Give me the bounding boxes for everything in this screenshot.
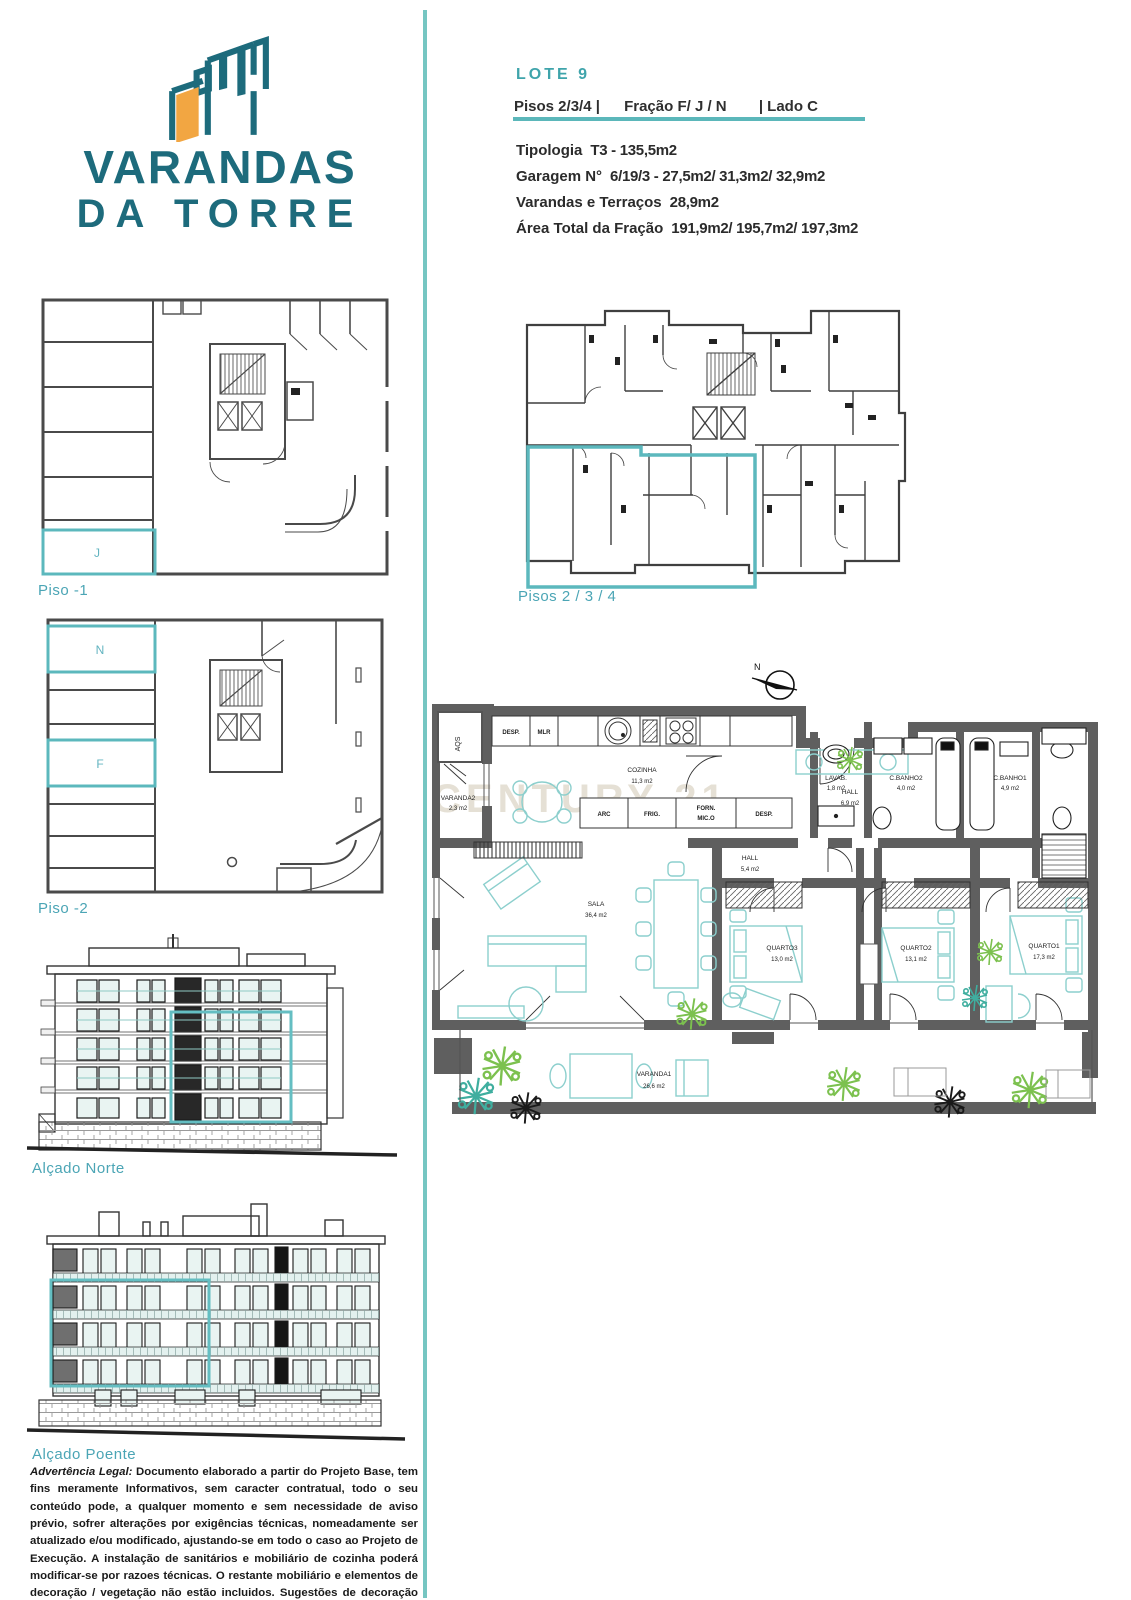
svg-text:4,0 m2: 4,0 m2 <box>897 786 916 792</box>
walls <box>432 704 1098 1114</box>
svg-text:LAVAB.: LAVAB. <box>825 775 847 782</box>
garage-space-J-label: J <box>94 546 100 560</box>
kitchen-forn: FORN. <box>697 806 716 812</box>
svg-text:1,8 m2: 1,8 m2 <box>827 786 846 792</box>
svg-text:VARANDA1: VARANDA1 <box>637 1071 672 1078</box>
svg-text:4,9 m2: 4,9 m2 <box>1001 786 1020 792</box>
brand-logo-icon <box>128 30 308 142</box>
svg-text:5,4 m2: 5,4 m2 <box>741 867 760 873</box>
svg-text:COZINHA: COZINHA <box>627 767 657 774</box>
detail-garagem: Garagem N°6/19/3 - 27,5m2/ 31,3m2/ 32,9m… <box>516 168 858 185</box>
fraction-details: TipologiaT3 - 135,5m2 Garagem N°6/19/3 -… <box>516 142 858 246</box>
legal-lead: Advertência Legal: <box>30 1466 132 1478</box>
detail-area-total: Área Total da Fração191,9m2/ 195,7m2/ 19… <box>516 220 858 237</box>
svg-text:13,0 m2: 13,0 m2 <box>771 957 793 963</box>
apartment-floor-plan: CENTURY 21 <box>430 698 1105 1128</box>
alcado-norte-elevation <box>25 928 400 1163</box>
svg-text:11,3 m2: 11,3 m2 <box>631 779 653 785</box>
subtitle-fracao: Fração F/ J / N <box>624 98 727 115</box>
kitchen-arc: ARC <box>598 812 612 818</box>
north-label: N <box>754 662 761 672</box>
svg-text:C.BANHO1: C.BANHO1 <box>993 775 1027 782</box>
kitchen-mico: MIC.O <box>697 816 715 822</box>
svg-text:VARANDA2: VARANDA2 <box>441 795 476 802</box>
brand-name-line1: VARANDAS <box>40 140 400 194</box>
legal-disclaimer: Advertência Legal: Documento elaborado a… <box>30 1464 418 1600</box>
piso-minus-1-plan: J <box>35 292 395 582</box>
piso-minus-2-plan: N F <box>40 612 390 900</box>
detail-varandas: Varandas e Terraços28,9m2 <box>516 194 858 211</box>
svg-text:QUARTO1: QUARTO1 <box>1028 943 1060 950</box>
svg-text:17,3 m2: 17,3 m2 <box>1033 955 1055 961</box>
svg-text:2,3 m2: 2,3 m2 <box>449 806 468 812</box>
svg-text:QUARTO3: QUARTO3 <box>766 945 798 952</box>
kitchen-frig: FRIG. <box>644 812 660 818</box>
piso-minus-1-caption: Piso -1 <box>38 582 88 599</box>
svg-text:SALA: SALA <box>588 901 605 908</box>
detail-tipologia: TipologiaT3 - 135,5m2 <box>516 142 858 159</box>
pisos-234-caption: Pisos 2 / 3 / 4 <box>518 588 616 605</box>
pisos-234-plan <box>513 295 913 590</box>
piso-minus-2-caption: Piso -2 <box>38 900 88 917</box>
brochure-page: VARANDAS DA TORRE <box>0 0 1131 1600</box>
svg-text:36,4 m2: 36,4 m2 <box>585 913 607 919</box>
alcado-poente-elevation <box>25 1192 410 1447</box>
kitchen-mlr: MLR <box>538 730 552 736</box>
alcado-poente-caption: Alçado Poente <box>32 1446 136 1463</box>
wardrobes <box>474 842 1088 908</box>
svg-text:26,6 m2: 26,6 m2 <box>643 1084 665 1090</box>
garage-space-N-label: N <box>96 643 105 657</box>
alcado-norte-caption: Alçado Norte <box>32 1160 125 1177</box>
fraction-subtitle: Pisos 2/3/4 | Fração F/ J / N | Lado C <box>514 98 818 115</box>
garage-space-F-label: F <box>96 757 103 771</box>
column-divider <box>423 10 427 1598</box>
header-rule <box>513 117 865 121</box>
kitchen-desp-top: DESP. <box>502 730 520 736</box>
subtitle-pisos: Pisos 2/3/4 | <box>514 98 600 115</box>
svg-text:QUARTO2: QUARTO2 <box>900 945 932 952</box>
aqs-label: AQS <box>455 736 462 751</box>
svg-text:HALL: HALL <box>742 855 759 862</box>
svg-text:13,1 m2: 13,1 m2 <box>905 957 927 963</box>
subtitle-lado: | Lado C <box>759 98 818 115</box>
lote-title: LOTE 9 <box>516 66 590 84</box>
legal-body: Documento elaborado a partir do Projeto … <box>30 1466 418 1600</box>
svg-text:C.BANHO2: C.BANHO2 <box>889 775 923 782</box>
kitchen-desp-bottom: DESP. <box>755 812 773 818</box>
brand-name-line2: DA TORRE <box>40 192 400 237</box>
svg-text:6,9 m2: 6,9 m2 <box>841 801 860 807</box>
